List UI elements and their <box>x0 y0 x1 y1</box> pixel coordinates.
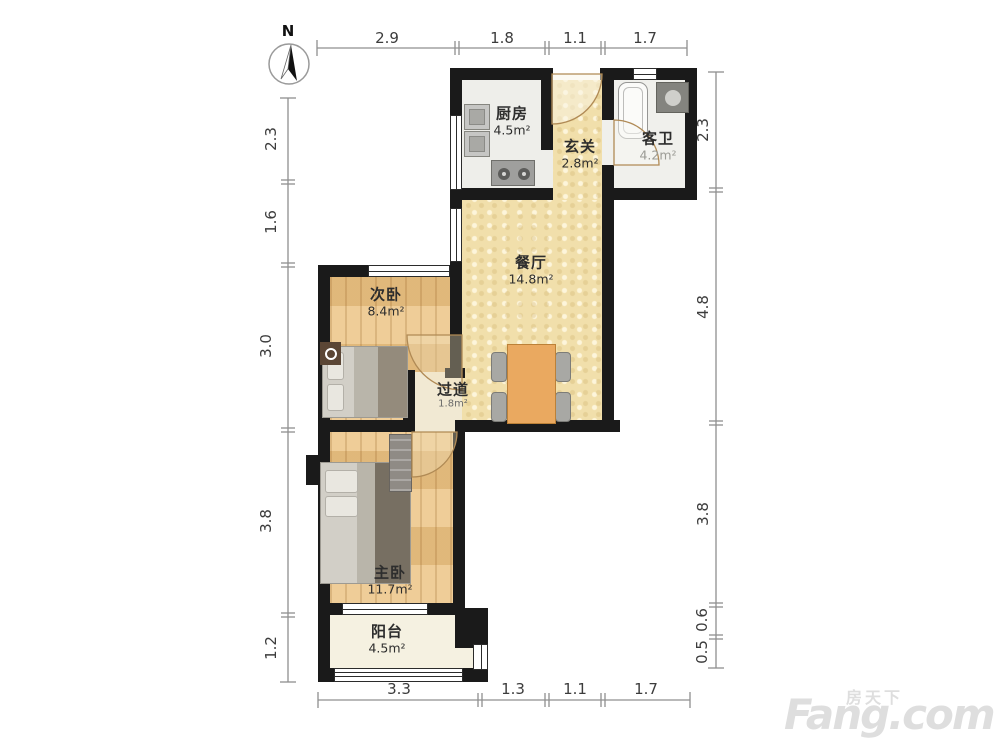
room-name: 餐厅 <box>508 255 553 272</box>
wall <box>450 200 462 208</box>
compass-needle <box>288 45 297 81</box>
wall <box>453 432 465 610</box>
dim-label-left-1: 1.6 <box>262 210 280 234</box>
room-area: 1.8m² <box>437 399 469 411</box>
bath-top-window <box>633 68 657 80</box>
wall <box>318 668 334 682</box>
dining-chair <box>555 352 571 382</box>
wall <box>450 265 462 375</box>
room-label-master-bedroom: 主卧 11.7m² <box>367 565 412 598</box>
wall <box>455 608 488 648</box>
bed-blanket <box>378 347 407 417</box>
dim-label-left-0: 2.3 <box>262 127 280 151</box>
room-area: 8.4m² <box>367 305 404 319</box>
wall <box>450 68 462 115</box>
wall <box>306 455 318 485</box>
dim-label-left-2: 3.0 <box>257 334 275 358</box>
dim-label-top-0: 2.9 <box>375 29 399 47</box>
room-area: 2.8m² <box>561 157 598 171</box>
dining-chair <box>491 392 507 422</box>
master-door-gap <box>415 420 455 432</box>
wall <box>602 68 614 120</box>
dining-chair <box>491 352 507 382</box>
dim-label-right-4: 0.5 <box>693 640 711 664</box>
room-name: 客卫 <box>639 131 676 148</box>
wall <box>318 603 342 615</box>
dim-label-bottom-2: 1.1 <box>563 680 587 698</box>
wall <box>602 200 614 432</box>
compass-needle-left <box>281 45 291 79</box>
compass-circle <box>269 44 309 84</box>
watermark-fang: 房天下 Fang.com <box>784 684 999 748</box>
north-label: N <box>282 22 295 40</box>
dim-label-right-2: 3.8 <box>694 502 712 526</box>
stove <box>491 160 535 186</box>
room-label-kitchen: 厨房 4.5m² <box>493 106 530 139</box>
bedroom2-top-window <box>368 265 450 277</box>
room-label-hallway: 过道 1.8m² <box>437 382 469 411</box>
room-name: 过道 <box>437 382 469 399</box>
stove-burner <box>518 168 530 180</box>
wall <box>463 668 488 682</box>
master-balcony-window <box>342 603 428 615</box>
bath-door-gap <box>602 120 614 165</box>
wall <box>318 420 415 432</box>
dining-chair <box>555 392 571 422</box>
dim-label-right-3: 0.6 <box>693 608 711 632</box>
kitchen-cabinet <box>464 104 490 130</box>
room-label-second-bedroom: 次卧 8.4m² <box>367 287 404 320</box>
kitchen-door-gap <box>541 150 553 188</box>
washbasin <box>656 82 689 113</box>
kitchen-left-window <box>450 115 462 190</box>
room-name: 阳台 <box>368 624 405 641</box>
room-name: 玄关 <box>561 139 598 156</box>
pillow <box>325 470 358 493</box>
washing-machine <box>320 342 341 365</box>
wardrobe <box>389 434 412 492</box>
room-area: 4.5m² <box>368 642 405 656</box>
room-name: 主卧 <box>367 565 412 582</box>
dim-label-left-4: 1.2 <box>262 636 280 660</box>
room-area: 4.2m² <box>639 149 676 163</box>
dim-label-top-1: 1.8 <box>490 29 514 47</box>
wall <box>602 188 697 200</box>
wall <box>450 68 550 80</box>
balcony-right-window <box>473 644 488 670</box>
room-label-balcony: 阳台 4.5m² <box>368 624 405 657</box>
dim-label-bottom-3: 1.7 <box>634 680 658 698</box>
watermark-en-text: Fang.com <box>784 694 994 736</box>
room-area: 14.8m² <box>508 273 553 287</box>
wall <box>445 368 465 378</box>
pillow <box>327 384 344 411</box>
kitchen-cabinet <box>464 131 490 157</box>
room-name: 厨房 <box>493 106 530 123</box>
dining-left-window <box>450 208 462 262</box>
dim-label-right-1: 4.8 <box>694 295 712 319</box>
pillow <box>325 496 358 517</box>
room-label-guest-bath: 客卫 4.2m² <box>639 131 676 164</box>
room-area: 11.7m² <box>367 583 412 597</box>
dim-label-left-3: 3.8 <box>257 509 275 533</box>
room-label-entry: 玄关 2.8m² <box>561 139 598 172</box>
dim-label-top-2: 1.1 <box>563 29 587 47</box>
dining-table <box>507 344 556 424</box>
room-name: 次卧 <box>367 287 404 304</box>
dim-label-top-3: 1.7 <box>633 29 657 47</box>
dim-label-bottom-1: 1.3 <box>501 680 525 698</box>
wall <box>541 68 553 150</box>
wall <box>450 188 553 200</box>
dim-label-right-0: 2.3 <box>694 118 712 142</box>
room-label-dining: 餐厅 14.8m² <box>508 255 553 288</box>
room-area: 4.5m² <box>493 124 530 138</box>
stove-burner <box>498 168 510 180</box>
dim-label-bottom-0: 3.3 <box>387 680 411 698</box>
floor-plan-canvas: N 厨房 4.5m² 玄关 2.8m² 客卫 4.2m² 餐厅 14.8m² 次… <box>0 0 1005 750</box>
bed-blanket <box>354 347 378 417</box>
